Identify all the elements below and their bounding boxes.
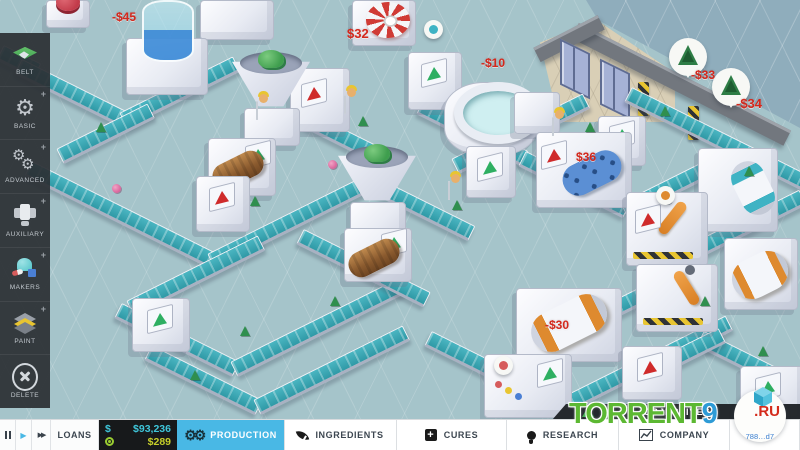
pill-item — [328, 160, 337, 169]
sidebar-item-belt[interactable]: BELT — [0, 33, 50, 87]
build-sidebar: BELT + ⚙ BASIC + ⚙ ⚙ ADVANCED + AUXILIAR… — [0, 33, 50, 408]
tab-company[interactable]: COMPANY — [619, 420, 730, 450]
income-coin-icon — [105, 437, 114, 446]
ingredient-item — [96, 122, 106, 132]
fast-forward-icon: ▶▶ — [38, 431, 45, 439]
loans-button[interactable]: LOANS — [51, 420, 99, 450]
ingredient-item — [330, 296, 340, 306]
dryer-machine[interactable] — [344, 228, 412, 282]
price-label: $36 — [576, 150, 596, 164]
sidebar-item-makers[interactable]: + MAKERS — [0, 248, 50, 302]
objectives-label: OBJECTIVES — [594, 407, 760, 417]
price-label: -$10 — [481, 56, 505, 70]
sidebar-item-basic[interactable]: + ⚙ BASIC — [0, 87, 50, 141]
sidebar-item-auxiliary[interactable]: + AUXILIARY — [0, 194, 50, 248]
red-tank — [56, 0, 80, 11]
plant-ingredient — [258, 50, 284, 68]
belt-icon — [12, 42, 38, 66]
lightbulb-icon — [527, 431, 536, 440]
worker — [344, 96, 346, 114]
play-button[interactable]: ▶ — [16, 420, 32, 450]
tab-production[interactable]: ⚙⚙ PRODUCTION — [177, 420, 285, 450]
pill-item — [112, 184, 121, 193]
ingredient-item — [660, 106, 670, 116]
sidebar-item-paint[interactable]: + PAINT — [0, 302, 50, 356]
ingredient-item — [585, 122, 595, 132]
chart-icon — [639, 429, 653, 441]
tab-research[interactable]: RESEARCH — [507, 420, 619, 450]
paint-layers-icon — [12, 311, 38, 335]
plant-ingredient — [364, 144, 390, 162]
item-bubble[interactable] — [656, 186, 675, 205]
price-label: -$34 — [736, 96, 762, 111]
auxiliary-machine-icon — [12, 204, 38, 228]
money-panel: $ $93,236 $289 — [99, 420, 177, 450]
gears-icon: ⚙ ⚙ — [12, 150, 38, 174]
ingredient-item — [700, 296, 710, 306]
maker-machine-icon — [12, 257, 38, 281]
play-icon: ▶ — [20, 431, 26, 440]
warning-triangle-icon — [582, 407, 594, 417]
machine[interactable] — [132, 298, 190, 352]
hamburger-menu-icon — [759, 431, 770, 440]
leaf-icon — [296, 428, 309, 441]
machine[interactable] — [698, 148, 778, 232]
machine[interactable] — [466, 146, 516, 198]
tab-menu[interactable] — [730, 420, 800, 450]
conveyor-belt[interactable] — [24, 161, 217, 269]
item-bubble[interactable] — [424, 20, 443, 39]
bottom-hud: ▶ ▶▶ LOANS $ $93,236 $289 ⚙⚙ PRODUCTION … — [0, 419, 800, 450]
machine[interactable] — [196, 176, 250, 232]
ingredient-item — [358, 116, 368, 126]
delete-circle-icon — [12, 365, 38, 389]
glass-chamber — [142, 0, 194, 62]
machine[interactable] — [724, 238, 798, 310]
ingredient-item — [240, 326, 250, 336]
pause-button[interactable] — [0, 420, 16, 450]
currency-symbol: $ — [105, 423, 111, 435]
ingredient-item — [452, 200, 462, 210]
gears-icon: ⚙⚙ — [184, 428, 203, 442]
balance-value: $93,236 — [133, 423, 171, 435]
item-bubble[interactable] — [494, 356, 513, 375]
price-label: -$33 — [691, 68, 715, 82]
ingredient-item — [758, 346, 768, 356]
sidebar-item-delete[interactable]: DELETE — [0, 355, 50, 408]
income-value: $289 — [148, 436, 171, 448]
machine[interactable] — [622, 346, 682, 400]
tab-cures[interactable]: + CURES — [397, 420, 507, 450]
game-screen: -$45 $32 -$10 -$33 -$34 $36 -$30 BELT + … — [0, 0, 800, 450]
sidebar-item-advanced[interactable]: + ⚙ ⚙ ADVANCED — [0, 140, 50, 194]
price-label: -$30 — [545, 318, 569, 332]
factory-viewport[interactable]: -$45 $32 -$10 -$33 -$34 $36 -$30 — [0, 0, 800, 450]
ingredient-item — [250, 196, 260, 206]
machine[interactable] — [46, 0, 90, 28]
pause-icon — [5, 431, 11, 439]
ingredient-item — [744, 166, 754, 176]
fast-forward-button[interactable]: ▶▶ — [32, 420, 51, 450]
worker — [552, 118, 554, 136]
tab-ingredients[interactable]: INGREDIENTS — [285, 420, 397, 450]
worker — [448, 182, 450, 200]
ingredient-item — [190, 370, 200, 380]
worker — [256, 102, 258, 120]
centrifuge-machine[interactable] — [536, 132, 632, 208]
objectives-bar[interactable]: OBJECTIVES — [552, 404, 800, 420]
gear-icon: ⚙ — [12, 96, 38, 120]
cross-icon: + — [425, 429, 437, 441]
price-label: $32 — [347, 26, 369, 41]
machine[interactable] — [200, 0, 274, 40]
price-label: -$45 — [112, 10, 136, 24]
